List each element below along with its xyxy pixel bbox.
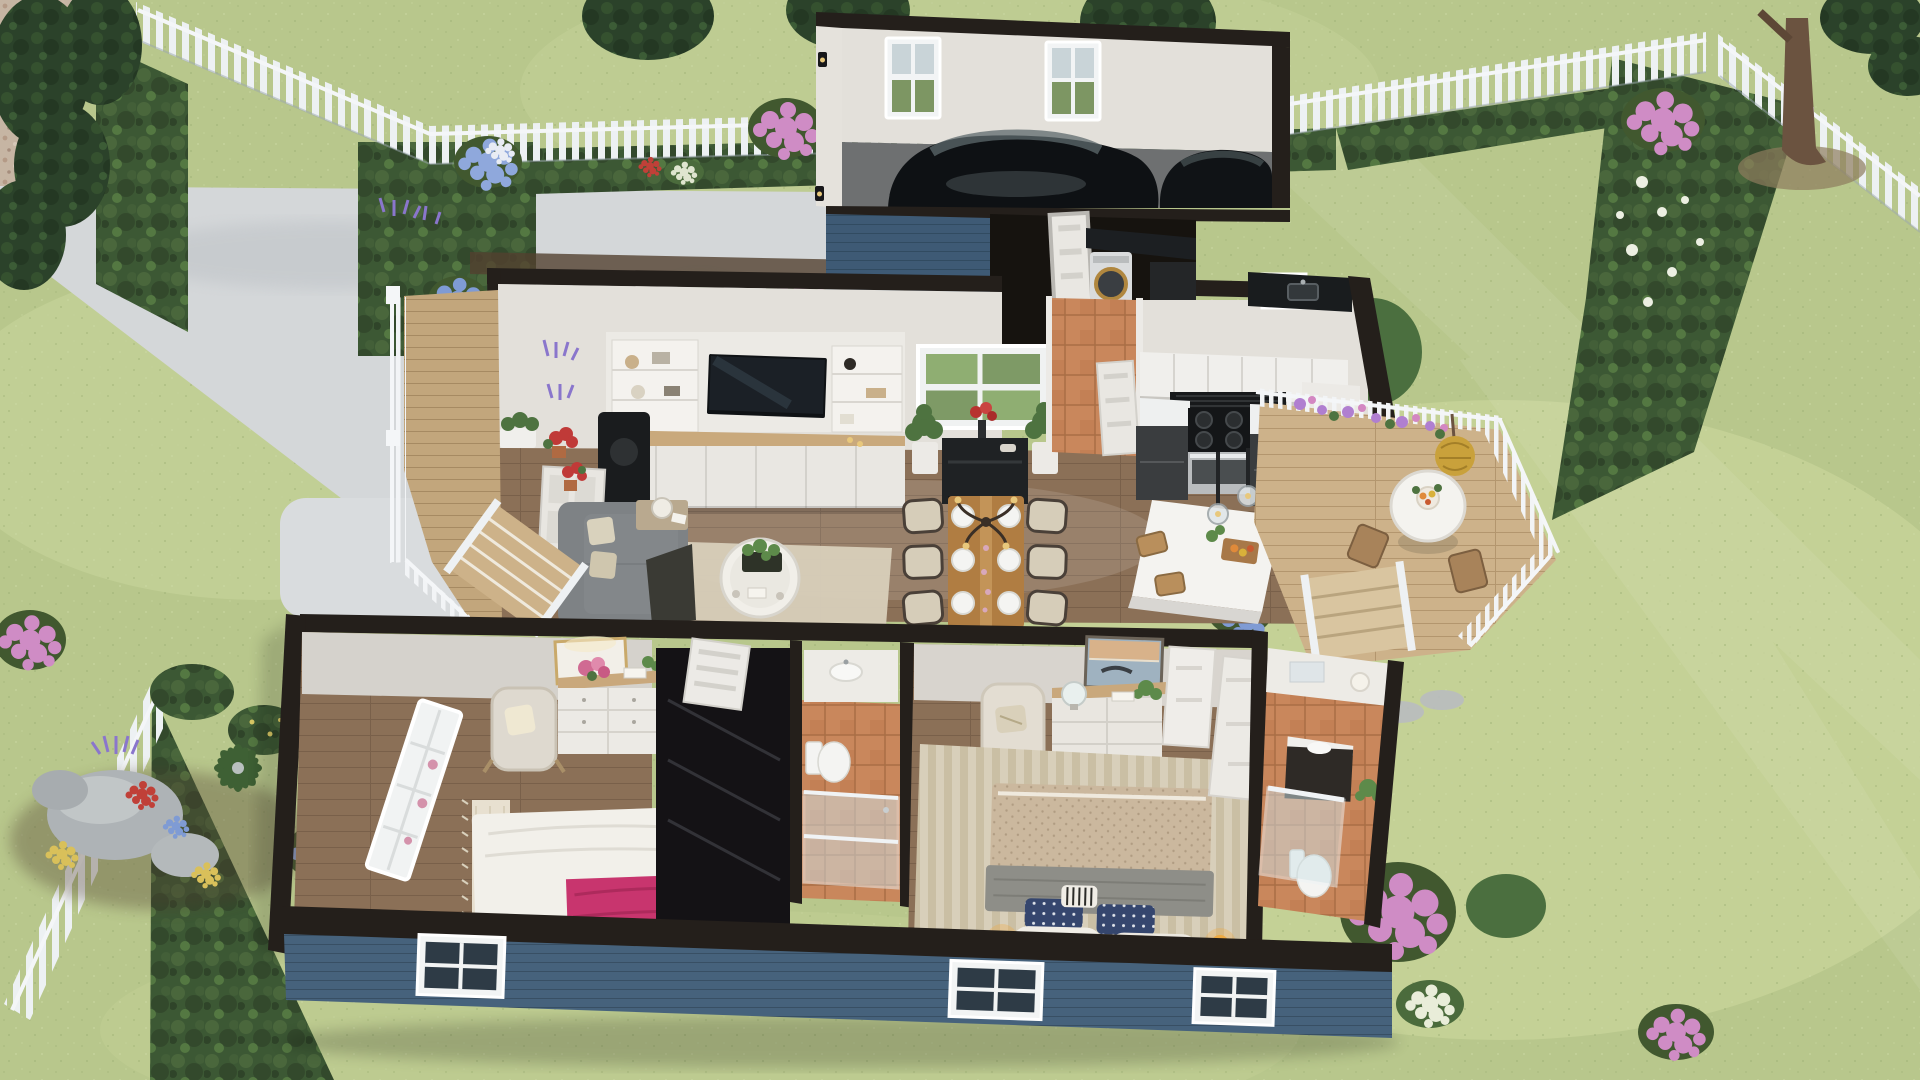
porch-planter-box <box>500 412 539 448</box>
sofa-pillow-cream-2 <box>589 551 618 580</box>
coach-lantern-lower <box>815 186 824 201</box>
tv <box>707 354 827 418</box>
faucet <box>1301 280 1306 285</box>
master-bathroom <box>1246 630 1404 952</box>
siding-window-2 <box>949 960 1043 1019</box>
table-lamp <box>652 498 672 518</box>
navy-pillow-2 <box>1096 904 1155 936</box>
round-mirror-light <box>1351 673 1369 691</box>
porch-post-top <box>386 286 400 304</box>
porch-post-mid <box>386 430 400 446</box>
garage-right-wall <box>1272 46 1290 208</box>
dresser-books <box>624 668 646 678</box>
master-bedroom <box>908 637 1269 969</box>
armchair-pillow <box>504 704 536 736</box>
siding-window-1 <box>417 935 505 998</box>
bedroom2-armchair <box>484 688 564 772</box>
entry-hall-tile <box>1046 296 1143 458</box>
coffee-table-books <box>748 588 766 598</box>
coach-lantern-upper <box>818 52 827 67</box>
console-bowl <box>1000 444 1016 452</box>
hall-bathroom <box>790 640 914 908</box>
green-bush-bottom-right <box>1466 874 1546 938</box>
bedroom-wing <box>268 614 1404 1038</box>
floorplan-render <box>0 0 1920 1080</box>
master-bath-shower <box>1260 788 1344 886</box>
builtin-shelf-right <box>832 346 902 432</box>
black-counter-sink <box>1248 272 1352 312</box>
hall-door <box>1097 361 1139 455</box>
siding-window-3 <box>1193 969 1275 1026</box>
scene-svg <box>0 0 1920 1080</box>
deck-table <box>1391 471 1465 554</box>
apron-white-bush <box>664 159 704 185</box>
lake-painting <box>1085 637 1163 690</box>
car-roof-shine <box>946 171 1086 197</box>
magnolia-plant <box>214 744 262 792</box>
builtin-media-wall <box>606 332 905 514</box>
hall-bath-shower <box>804 792 898 888</box>
dining-window <box>918 346 1048 428</box>
sofa-pillow-cream-1 <box>586 516 615 545</box>
coffee-table <box>721 539 799 617</box>
mudroom-door <box>1048 211 1095 313</box>
bath-mirror <box>1290 662 1324 682</box>
master-books <box>1112 692 1134 701</box>
hall-bath-vanity <box>804 650 898 702</box>
dining-table <box>948 496 1024 628</box>
closet-door-ajar <box>684 638 750 709</box>
striped-mini-pillow <box>1061 885 1098 908</box>
side-table <box>636 498 688 530</box>
closet-dark <box>656 638 790 932</box>
garage-window-1 <box>886 38 940 118</box>
rock-garden-bush-1 <box>150 664 234 720</box>
garage-window-2 <box>1046 42 1100 120</box>
white-bush-bottom-right <box>1396 980 1464 1028</box>
fireplace-stove <box>598 412 650 506</box>
boulder-small-2 <box>32 770 88 810</box>
